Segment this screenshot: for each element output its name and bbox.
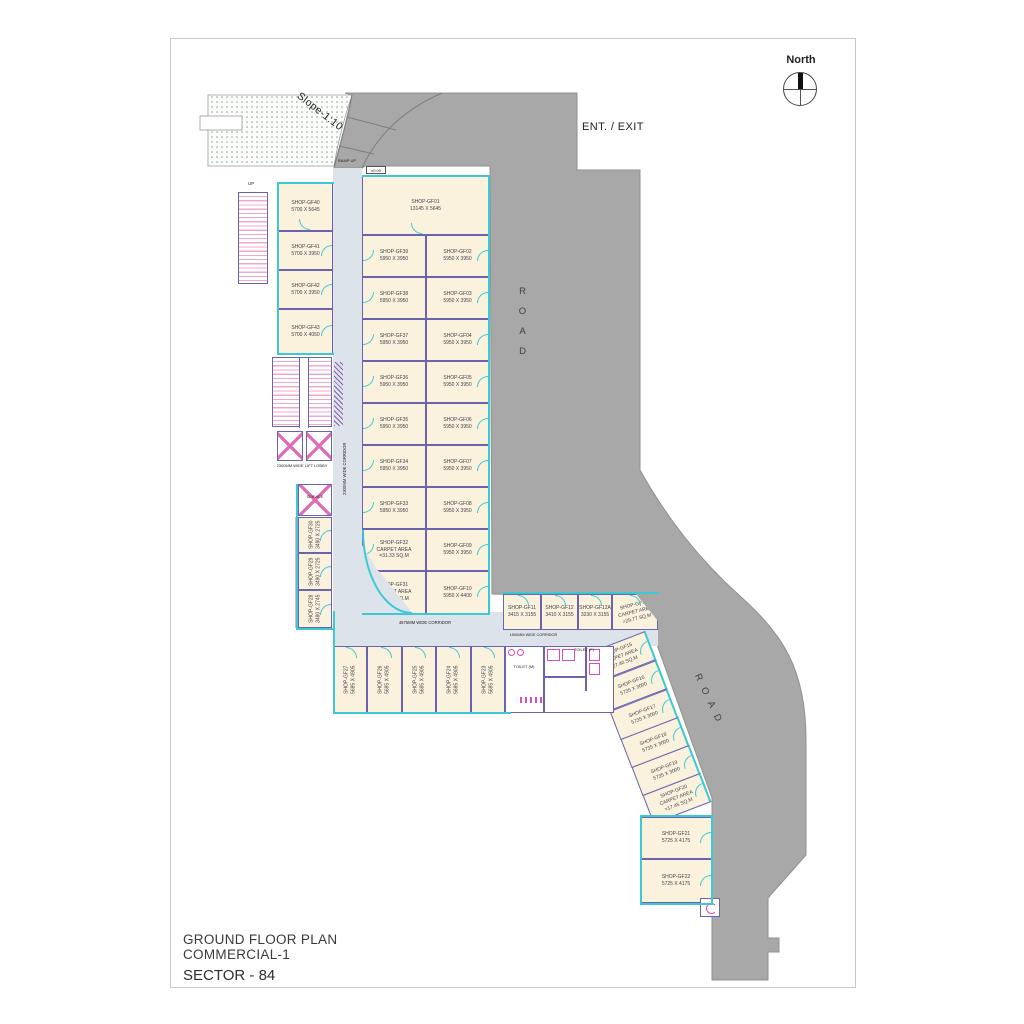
shop-room-shop-gf42: SHOP-GF425700 X 3950 xyxy=(278,270,333,309)
door-arc xyxy=(449,647,460,658)
shop-room-shop-gf02: SHOP-GF025950 X 3950 xyxy=(426,235,489,277)
door-arc xyxy=(321,245,332,256)
lift-icon xyxy=(277,431,303,461)
shop-label: SHOP-GF085950 X 3950 xyxy=(443,501,471,515)
shop-room-shop-gf38: SHOP-GF385950 X 3950 xyxy=(362,277,426,319)
door-arc xyxy=(477,292,488,303)
shop-label: SHOP-GF195735 X 3000 xyxy=(650,759,681,782)
door-arc xyxy=(477,418,488,429)
shop-room-shop-gf25: SHOP-GF255685 X 4905 xyxy=(402,646,436,713)
door-arc xyxy=(477,502,488,513)
shop-room-shop-gf08: SHOP-GF085950 X 3950 xyxy=(426,487,489,529)
shop-room-shop-gf37: SHOP-GF375950 X 3950 xyxy=(362,319,426,361)
shop-label: SHOP-GF32CARPET AREA=31.33 SQ.M xyxy=(377,540,412,560)
shop-room-shop-gf23: SHOP-GF235685 X 4905 xyxy=(471,646,505,713)
door-arc xyxy=(700,832,711,843)
corridor-vertical-label: 2300MM WIDE CORRIDOR xyxy=(342,415,347,495)
shop-label: SHOP-GF395950 X 3950 xyxy=(380,249,408,263)
shop-label: SHOP-GF405700 X 5645 xyxy=(291,200,319,214)
shop-room-shop-gf03: SHOP-GF035950 X 3950 xyxy=(426,277,489,319)
service-lift-label: SERVICE xyxy=(300,495,330,500)
shop-room-shop-gf29: SHOP-GF293490 X 2725 xyxy=(298,553,332,590)
shop-label: SHOP-GF283480 X 2745 xyxy=(308,595,322,623)
toilet-wall xyxy=(543,646,545,713)
shop-room-shop-gf04: SHOP-GF045950 X 3950 xyxy=(426,319,489,361)
up-label: UP xyxy=(248,181,254,187)
shop-room-shop-gf27: SHOP-GF275685 X 4905 xyxy=(333,646,367,713)
door-arc xyxy=(299,219,310,230)
wc-fixture xyxy=(508,649,515,656)
door-arc xyxy=(363,376,374,387)
level-marker: ±0.00 xyxy=(366,166,386,174)
door-arc xyxy=(411,223,422,234)
staircase-main xyxy=(272,357,332,427)
title-line-3: SECTOR - 84 xyxy=(183,967,337,984)
shop-label: SHOP-GF355950 X 3950 xyxy=(380,417,408,431)
shop-label: SHOP-GF435700 X 4050 xyxy=(291,325,319,339)
door-arc xyxy=(381,647,392,658)
shop-room-shop-gf09: SHOP-GF095950 X 3950 xyxy=(426,529,489,571)
shop-room-shop-gf07: SHOP-GF075950 X 3950 xyxy=(426,445,489,487)
shop-label: SHOP-GF293490 X 2725 xyxy=(308,557,322,585)
shop-label: SHOP-GF415700 X 3950 xyxy=(291,244,319,258)
shop-room-shop-gf05: SHOP-GF055950 X 3950 xyxy=(426,361,489,403)
door-arc xyxy=(321,325,332,336)
shop-label: SHOP-GF113415 X 3155 xyxy=(508,605,536,619)
shop-label: SHOP-GF185735 X 3000 xyxy=(639,731,670,754)
shop-room-shop-gf39: SHOP-GF395950 X 3950 xyxy=(362,235,426,277)
shop-room-shop-gf43: SHOP-GF435700 X 4050 xyxy=(278,309,333,354)
shop-label: SHOP-GF055950 X 3950 xyxy=(443,375,471,389)
title-line-2: COMMERCIAL-1 xyxy=(183,947,337,962)
shop-room-shop-gf12: SHOP-GF123410 X 3155 xyxy=(541,594,578,630)
shop-label: SHOP-GF265685 X 4905 xyxy=(378,665,392,693)
shop-room-shop-gf36: SHOP-GF365950 X 3950 xyxy=(362,361,426,403)
door-arc xyxy=(363,418,374,429)
service-lift-icon xyxy=(298,484,332,516)
corridor-small-label: 1500MM WIDE CORRIDOR xyxy=(506,633,561,638)
lift-lobby-label: 2300MM WIDE LIFT LOBBY xyxy=(271,463,333,468)
corridor-horizontal xyxy=(333,612,505,646)
shop-label: SHOP-GF245685 X 4905 xyxy=(447,665,461,693)
shop-room-shop-gf24: SHOP-GF245685 X 4905 xyxy=(436,646,470,713)
door-arc xyxy=(555,595,566,606)
north-compass-icon xyxy=(783,72,817,106)
shop-label: SHOP-GF105950 X 4400 xyxy=(443,586,471,600)
shop-label: SHOP-GF0113145 X 5645 xyxy=(410,199,441,213)
shop-label: SHOP-GF095950 X 3950 xyxy=(443,543,471,557)
title-block: GROUND FLOOR PLAN COMMERCIAL-1 SECTOR - … xyxy=(183,932,337,984)
landscape-dotted-area xyxy=(208,95,352,166)
ramp-up-label: RAMP UP xyxy=(336,158,358,163)
door-arc xyxy=(681,754,695,768)
door-arc xyxy=(477,544,488,555)
door-arc xyxy=(477,334,488,345)
floor-plan-canvas: SHOP-GF405700 X 5645SHOP-GF415700 X 3950… xyxy=(0,0,1024,1024)
shop-label: SHOP-GF385950 X 3950 xyxy=(380,291,408,305)
shop-label: SHOP-GF175735 X 3000 xyxy=(628,703,659,726)
basin-row xyxy=(520,697,542,703)
shop-room-shop-gf40: SHOP-GF405700 X 5645 xyxy=(278,183,333,231)
shop-label: SHOP-GF165735 X 3000 xyxy=(617,674,648,697)
shop-room-shop-gf28: SHOP-GF283480 X 2745 xyxy=(298,590,332,628)
shop-room-shop-gf33: SHOP-GF335950 X 3950 xyxy=(362,487,426,529)
shop-label: SHOP-GF255685 X 4905 xyxy=(412,665,426,693)
shop-label: SHOP-GF123410 X 3155 xyxy=(545,605,573,619)
shop-room-shop-gf34: SHOP-GF345950 X 3950 xyxy=(362,445,426,487)
shop-room-shop-gf41: SHOP-GF415700 X 3950 xyxy=(278,231,333,270)
door-arc xyxy=(363,502,374,513)
shop-label: SHOP-GF035950 X 3950 xyxy=(443,291,471,305)
shop-label: SHOP-GF12A3230 X 3155 xyxy=(579,605,611,619)
toilet-f-label: TOILET (F) xyxy=(566,647,602,652)
utility-shaft xyxy=(700,898,720,917)
shop-label: SHOP-GF425700 X 3950 xyxy=(291,283,319,297)
compass-label: North xyxy=(786,54,816,66)
door-arc xyxy=(321,284,332,295)
door-arc xyxy=(477,460,488,471)
shop-label: SHOP-GF20CARPET AREA=17.45 SQ.M xyxy=(657,782,697,813)
door-arc xyxy=(363,460,374,471)
shop-label: SHOP-GF215725 X 4175 xyxy=(662,831,690,845)
outer-wall-small-row xyxy=(503,592,659,594)
shop-room-shop-gf22: SHOP-GF225725 X 4175 xyxy=(640,859,712,903)
lift-icon xyxy=(306,431,332,461)
shop-label: SHOP-GF065950 X 3950 xyxy=(443,417,471,431)
corridor-horizontal-label: 4675MM WIDE CORRIDOR xyxy=(385,620,465,625)
door-arc xyxy=(518,595,529,606)
toilet-wall xyxy=(543,676,586,678)
toilet-m-label: TOILET (M) xyxy=(505,664,543,669)
shop-label: SHOP-GF365950 X 3950 xyxy=(380,375,408,389)
shop-label: SHOP-GF275685 X 4905 xyxy=(343,665,357,693)
door-arc xyxy=(484,647,495,658)
door-arc xyxy=(415,647,426,658)
toilet-stall xyxy=(547,649,560,661)
shop-label: SHOP-GF345950 X 3950 xyxy=(380,459,408,473)
door-arc xyxy=(591,595,602,606)
road-and-slope-graphic xyxy=(0,0,1024,1024)
shop-room-shop-gf21: SHOP-GF215725 X 4175 xyxy=(640,817,712,859)
shop-room-shop-gf30: SHOP-GF303490 X 2725 xyxy=(298,517,332,553)
door-arc xyxy=(363,250,374,261)
door-arc xyxy=(363,292,374,303)
title-line-1: GROUND FLOOR PLAN xyxy=(183,932,337,947)
shop-label: SHOP-GF375950 X 3950 xyxy=(380,333,408,347)
shop-label: SHOP-GF075950 X 3950 xyxy=(443,459,471,473)
shop-label: SHOP-GF025950 X 3950 xyxy=(443,249,471,263)
shop-label: SHOP-GF335950 X 3950 xyxy=(380,501,408,515)
toilet-stall xyxy=(589,663,600,675)
road-label-right: ROAD xyxy=(517,286,528,381)
door-arc xyxy=(659,698,673,712)
shop-room-shop-gf06: SHOP-GF065950 X 3950 xyxy=(426,403,489,445)
shop-label: SHOP-GF225725 X 4175 xyxy=(662,874,690,888)
door-arc xyxy=(700,875,711,886)
shop-room-shop-gf35: SHOP-GF355950 X 3950 xyxy=(362,403,426,445)
shop-label: SHOP-GF045950 X 3950 xyxy=(443,333,471,347)
shaft-hatch xyxy=(292,517,298,628)
wc-fixture xyxy=(517,649,524,656)
door-arc xyxy=(477,250,488,261)
entrance-exit-label: ENT. / EXIT xyxy=(582,121,644,133)
door-arc xyxy=(670,726,684,740)
door-arc xyxy=(648,669,662,683)
shop-label: SHOP-GF303490 X 2725 xyxy=(308,521,322,549)
door-arc xyxy=(346,647,357,658)
door-arc xyxy=(477,586,488,597)
landscape-tab xyxy=(200,116,242,130)
staircase-top-left xyxy=(238,192,268,284)
shop-room-shop-gf26: SHOP-GF265685 X 4905 xyxy=(367,646,401,713)
toilet-wall xyxy=(585,646,587,691)
shop-room-shop-gf01: SHOP-GF0113145 X 5645 xyxy=(362,176,489,235)
shop-room-shop-gf11: SHOP-GF113415 X 3155 xyxy=(503,594,541,630)
shop-room-shop-gf10: SHOP-GF105950 X 4400 xyxy=(426,571,489,614)
shop-room-shop-gf12a: SHOP-GF12A3230 X 3155 xyxy=(578,594,612,630)
door-arc xyxy=(477,376,488,387)
door-arc xyxy=(363,334,374,345)
shop-label: SHOP-GF235685 X 4905 xyxy=(481,665,495,693)
